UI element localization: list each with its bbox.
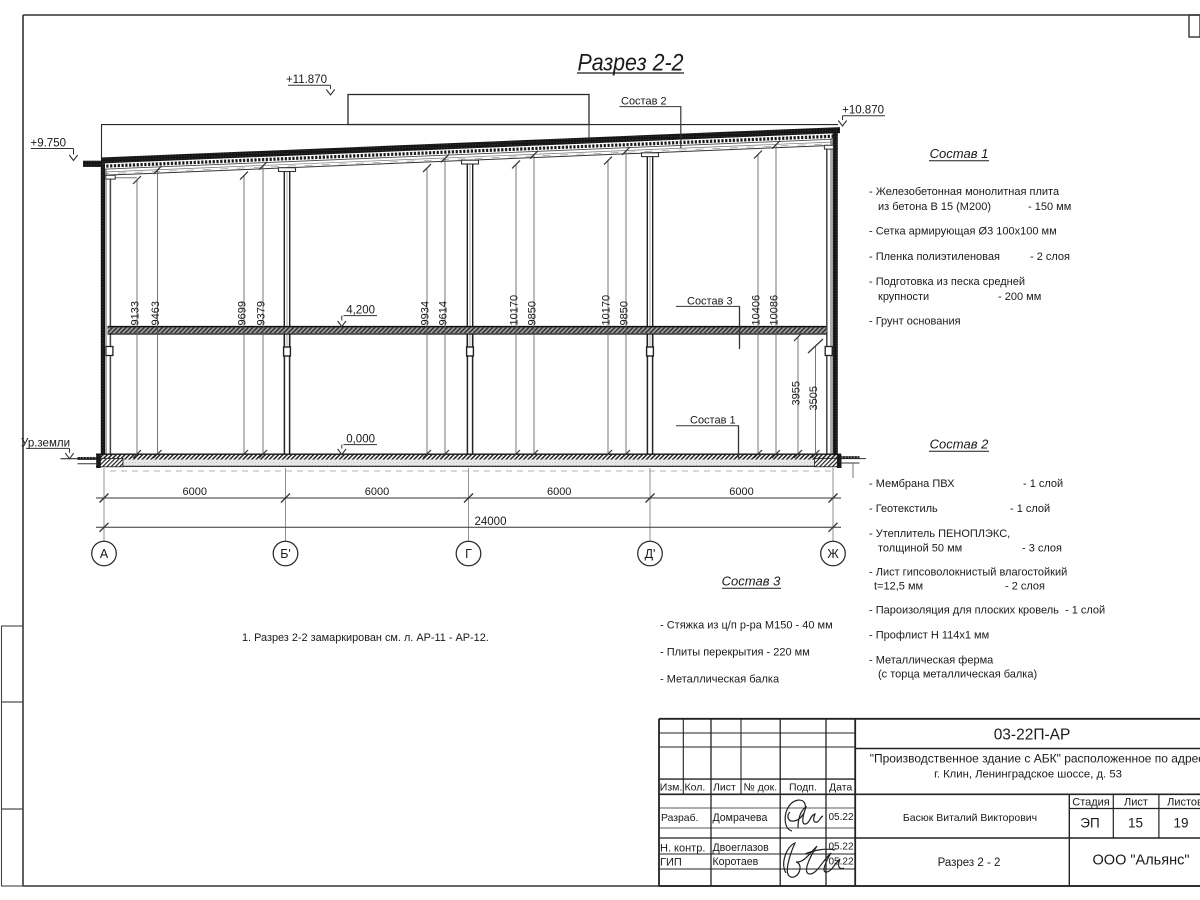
svg-text:"Производственное здание с АБК: "Производственное здание с АБК" располож… — [870, 752, 1200, 766]
svg-text:Состав 2: Состав 2 — [621, 95, 667, 107]
svg-text:- Мембрана ПВХ: - Мембрана ПВХ — [869, 478, 955, 490]
svg-text:9133: 9133 — [130, 301, 142, 325]
svg-text:Двоеглазов: Двоеглазов — [713, 842, 770, 854]
svg-text:ЭП: ЭП — [1080, 816, 1099, 831]
svg-text:ГИП: ГИП — [660, 857, 682, 869]
svg-text:9614: 9614 — [438, 301, 450, 325]
svg-text:Состав 3: Состав 3 — [687, 295, 733, 307]
svg-text:Г: Г — [465, 547, 472, 561]
svg-text:Ж: Ж — [827, 547, 839, 561]
svg-text:Лист: Лист — [713, 782, 736, 794]
svg-text:9934: 9934 — [420, 301, 432, 325]
svg-text:9379: 9379 — [256, 301, 268, 325]
svg-text:6000: 6000 — [547, 486, 571, 498]
svg-text:+11.870: +11.870 — [286, 74, 327, 86]
svg-text:А: А — [100, 547, 109, 561]
svg-text:9850: 9850 — [527, 301, 539, 325]
svg-text:6000: 6000 — [729, 486, 753, 498]
svg-text:- Железобетонная монолитная п: - Железобетонная монолитная плита — [869, 186, 1060, 198]
svg-text:10170: 10170 — [601, 295, 613, 326]
svg-text:1. Разрез 2-2 замаркирован см.: 1. Разрез 2-2 замаркирован см. л. АР-11 … — [242, 632, 489, 644]
svg-text:- 1 слой: - 1 слой — [1010, 503, 1050, 515]
svg-text:- 200 мм: - 200 мм — [998, 291, 1041, 303]
svg-text:Состав 2: Состав 2 — [930, 437, 989, 452]
svg-text:0,000: 0,000 — [346, 434, 375, 446]
svg-text:24000: 24000 — [475, 516, 507, 528]
svg-text:Стадия: Стадия — [1072, 797, 1110, 809]
svg-text:19: 19 — [1173, 816, 1188, 831]
svg-text:- 3 слоя: - 3 слоя — [1022, 543, 1062, 555]
svg-text:10086: 10086 — [769, 295, 781, 326]
svg-text:- 2 слоя: - 2 слоя — [1030, 251, 1070, 263]
svg-text:- 1 слой: - 1 слой — [1065, 605, 1105, 617]
svg-text:4,200: 4,200 — [346, 305, 375, 317]
svg-text:3505: 3505 — [808, 386, 820, 410]
svg-text:Кол.: Кол. — [685, 782, 706, 794]
svg-text:- Профлист Н 114х1 мм: - Профлист Н 114х1 мм — [869, 630, 989, 642]
svg-text:- 1 слой: - 1 слой — [1023, 478, 1063, 490]
svg-text:05.22: 05.22 — [829, 857, 854, 868]
svg-text:+10.870: +10.870 — [842, 105, 884, 117]
svg-text:- Сетка армирующая Ø3 100х100: - Сетка армирующая Ø3 100х100 мм — [869, 226, 1057, 238]
svg-text:+9.750: +9.750 — [31, 138, 67, 150]
svg-text:Коротаев: Коротаев — [713, 856, 759, 868]
svg-text:15: 15 — [1128, 816, 1143, 831]
svg-text:- Металлическая ферма: - Металлическая ферма — [869, 655, 994, 667]
svg-text:Д': Д' — [645, 547, 656, 561]
svg-text:05.22: 05.22 — [829, 812, 854, 823]
svg-text:- Пароизоляция для плоских кро: - Пароизоляция для плоских кровель — [869, 605, 1059, 617]
svg-text:- Лист гипсоволокнистый влагос: - Лист гипсоволокнистый влагостойкий — [869, 567, 1067, 579]
svg-text:9850: 9850 — [619, 301, 631, 325]
svg-text:Б': Б' — [280, 547, 291, 561]
svg-text:03-22П-АР: 03-22П-АР — [994, 727, 1071, 744]
svg-text:Состав 1: Состав 1 — [930, 146, 989, 161]
svg-text:Разрез 2 - 2: Разрез 2 - 2 — [938, 857, 1001, 869]
svg-text:Лист: Лист — [1124, 797, 1148, 809]
svg-text:из бетона В 15 (М200): из бетона В 15 (М200) — [878, 201, 991, 213]
svg-text:- Стяжка из ц/п р-ра М150 - 40: - Стяжка из ц/п р-ра М150 - 40 мм — [660, 620, 833, 632]
svg-text:05.22: 05.22 — [829, 842, 854, 853]
svg-text:- Плиты перекрытия - 220 мм: - Плиты перекрытия - 220 мм — [660, 647, 810, 659]
svg-text:Ур.земли: Ур.земли — [21, 438, 70, 450]
svg-text:- Пленка полиэтиленовая: - Пленка полиэтиленовая — [869, 251, 1000, 263]
svg-text:Домрачева: Домрачева — [713, 812, 768, 824]
svg-text:- Подготовка из песка средней: - Подготовка из песка средней — [869, 276, 1025, 288]
svg-text:- 150 мм: - 150 мм — [1028, 201, 1071, 213]
svg-text:10406: 10406 — [751, 295, 763, 326]
svg-text:- Утеплитель ПЕНОПЛЭКС,: - Утеплитель ПЕНОПЛЭКС, — [869, 528, 1010, 540]
svg-text:6000: 6000 — [183, 486, 207, 498]
svg-text:№ док.: № док. — [744, 782, 778, 794]
svg-text:Листов: Листов — [1167, 797, 1200, 809]
svg-text:Изм.: Изм. — [660, 782, 683, 794]
svg-text:Состав 3: Состав 3 — [722, 574, 781, 589]
svg-text:- Грунт основания: - Грунт основания — [869, 316, 961, 328]
svg-text:Состав 1: Состав 1 — [690, 415, 736, 427]
svg-text:Дата: Дата — [829, 782, 852, 794]
svg-text:t=12,5 мм: t=12,5 мм — [874, 581, 923, 593]
svg-text:- Металлическая балка: - Металлическая балка — [660, 674, 780, 686]
svg-text:(с торца металлическая балка): (с торца металлическая балка) — [878, 669, 1037, 681]
svg-text:3955: 3955 — [791, 381, 803, 405]
svg-text:Подп.: Подп. — [789, 782, 817, 794]
svg-text:Разраб.: Разраб. — [661, 812, 698, 824]
svg-text:г. Клин, Ленинградское шоссе,: г. Клин, Ленинградское шоссе, д. 53 — [934, 769, 1122, 781]
svg-text:толщиной 50 мм: толщиной 50 мм — [878, 543, 962, 555]
svg-text:9463: 9463 — [150, 301, 162, 325]
svg-text:6000: 6000 — [365, 486, 389, 498]
svg-text:Н. контр.: Н. контр. — [660, 843, 705, 855]
svg-text:Басюк Виталий Викторович: Басюк Виталий Викторович — [903, 812, 1037, 824]
svg-text:- 2 слоя: - 2 слоя — [1005, 581, 1045, 593]
svg-text:9699: 9699 — [237, 301, 249, 325]
svg-text:- Геотекстиль: - Геотекстиль — [869, 503, 938, 515]
svg-text:10170: 10170 — [509, 295, 521, 326]
svg-text:ООО "Альянс": ООО "Альянс" — [1093, 853, 1190, 869]
svg-text:крупности: крупности — [878, 291, 929, 303]
